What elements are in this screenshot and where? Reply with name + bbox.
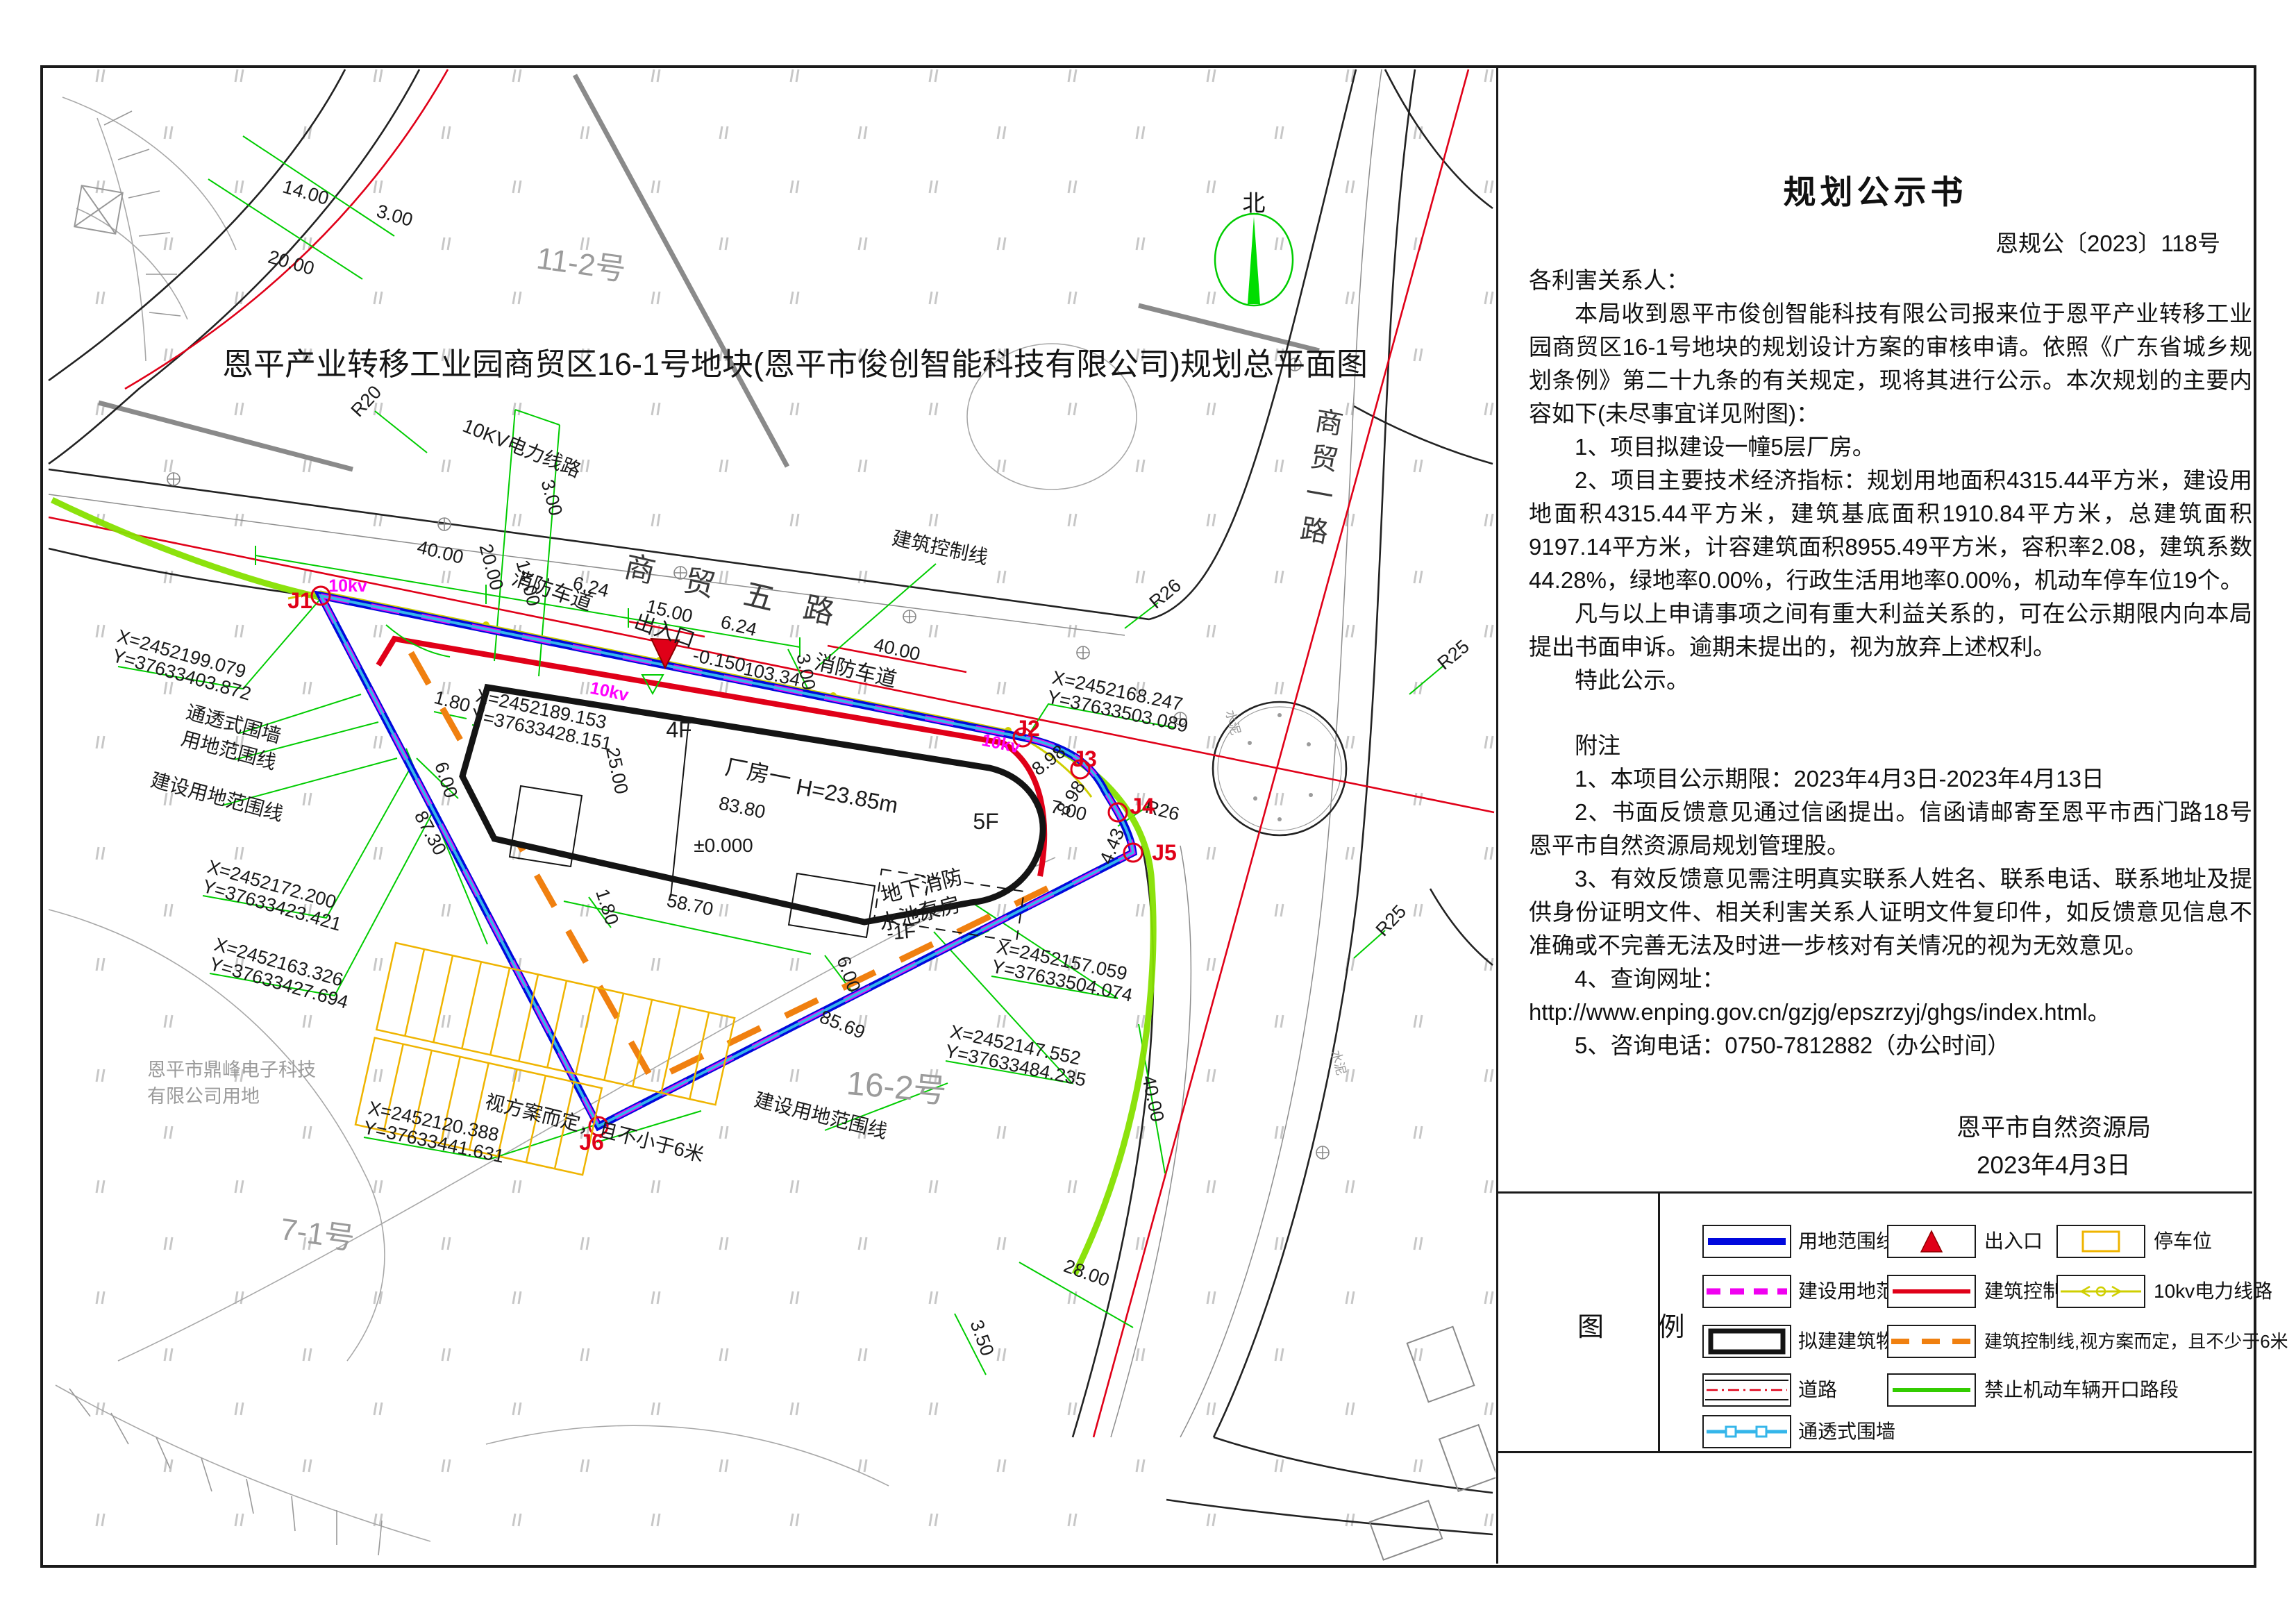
notice-title: 规划公示书 bbox=[1498, 165, 2252, 213]
power-tag: 10kv bbox=[328, 576, 367, 596]
road-name-shangmao-1: 贸 bbox=[1308, 442, 1341, 476]
legend-label: 通透式围墙 bbox=[1798, 1415, 1895, 1448]
floor-5f: 5F bbox=[973, 809, 998, 834]
point-j6: J6 bbox=[579, 1130, 604, 1155]
legend-swatch-no-opening bbox=[1887, 1373, 1976, 1407]
neighbor-owner: 恩平市鼎峰电子科技 bbox=[147, 1060, 316, 1080]
annex-item: 4、查询网址： bbox=[1529, 962, 2252, 996]
legend-label: 出入口 bbox=[1984, 1225, 2043, 1258]
site-plan-map: > bbox=[43, 68, 1495, 1561]
point-j3: J3 bbox=[1072, 746, 1097, 771]
legend-swatch-entrance bbox=[1887, 1225, 1976, 1258]
parking-space-icon bbox=[2083, 1232, 2119, 1251]
legend-swatch-control-line-conditional bbox=[1887, 1325, 1976, 1358]
legend-border-bottom bbox=[1496, 1451, 2252, 1453]
legend-label: 禁止机动车辆开口路段 bbox=[1984, 1373, 2179, 1407]
floor-4f: 4F bbox=[666, 717, 692, 742]
neighbor-owner: 有限公司用地 bbox=[147, 1086, 260, 1107]
road-name-shangmao-1: 商 bbox=[1313, 405, 1346, 440]
north-label: 北 bbox=[1243, 190, 1266, 216]
notice-paragraph: 2、项目主要技术经济指标：规划用地面积4315.44平方米，建设用地面积4315… bbox=[1529, 464, 2252, 597]
legend-label: 拟建建筑物 bbox=[1798, 1325, 1895, 1358]
legend-border-top bbox=[1496, 1191, 2252, 1194]
annex-item: 2、书面反馈意见通过信函提出。信函请邮寄至恩平市西门路18号恩平市自然资源局规划… bbox=[1529, 796, 2252, 862]
point-j5: J5 bbox=[1152, 840, 1177, 865]
notice-paragraph: 凡与以上申请事项之间有重大利益关系的，可在公示期限内向本局提出书面申诉。逾期未提… bbox=[1529, 597, 2252, 664]
legend-swatch-construction-boundary bbox=[1702, 1275, 1791, 1308]
road-icon bbox=[1704, 1375, 1790, 1405]
issue-date: 2023年4月3日 bbox=[1873, 1147, 2234, 1184]
notice-paragraph: 本局收到恩平市俊创智能科技有限公司报来位于恩平产业转移工业园商贸区16-1号地块… bbox=[1529, 297, 2252, 430]
legend-label: 用地范围线 bbox=[1798, 1225, 1895, 1258]
notice-paragraph: 特此公示。 bbox=[1529, 664, 2252, 697]
plan-sheet: > bbox=[0, 0, 2296, 1624]
point-j1: J1 bbox=[287, 588, 312, 613]
entrance-triangle-icon bbox=[1921, 1231, 1942, 1252]
legend-swatch-road bbox=[1702, 1373, 1791, 1407]
notice-body: 各利害关系人： 本局收到恩平市俊创智能科技有限公司报来位于恩平产业转移工业园商贸… bbox=[1529, 264, 2252, 1062]
notice-paragraph: 1、项目拟建设一幢5层厂房。 bbox=[1529, 430, 2252, 464]
point-j4: J4 bbox=[1130, 794, 1155, 819]
legend-swatch-proposed-building bbox=[1702, 1325, 1791, 1358]
annex-title: 附注 bbox=[1529, 729, 2252, 762]
permeable-wall-icon bbox=[1704, 1416, 1790, 1447]
notice-doc-number: 恩规公〔2023〕118号 bbox=[1526, 225, 2220, 258]
notice-salutation: 各利害关系人： bbox=[1529, 264, 2252, 297]
legend-label: 道路 bbox=[1798, 1373, 1837, 1407]
annex-item: 1、本项目公示期限：2023年4月3日-2023年4月13日 bbox=[1529, 762, 2252, 796]
legend-swatch-parking bbox=[2056, 1225, 2145, 1258]
level-zero: ±0.000 bbox=[694, 835, 753, 856]
annex-item: 5、咨询电话：0750-7812882（办公时间） bbox=[1529, 1029, 2252, 1062]
proposed-building-icon bbox=[1711, 1331, 1783, 1352]
issuer-name: 恩平市自然资源局 bbox=[1873, 1110, 2234, 1147]
legend-swatch-parcel-boundary bbox=[1702, 1225, 1791, 1258]
legend-label: 建筑控制线,视方案而定，且不少于6米 bbox=[1984, 1325, 2288, 1358]
legend-label: 停车位 bbox=[2154, 1225, 2212, 1258]
legend-swatch-power-line bbox=[2056, 1275, 2145, 1308]
legend-label: 10kv电力线路 bbox=[2154, 1275, 2272, 1308]
annex-url: http://www.enping.gov.cn/gzjg/epszrzyj/g… bbox=[1529, 996, 2252, 1029]
annex-item: 3、有效反馈意见需注明真实联系人姓名、联系电话、联系地址及提供身份证明文件、相关… bbox=[1529, 862, 2252, 962]
power-line-icon bbox=[2058, 1276, 2144, 1307]
pump-room-floor: -1F bbox=[886, 920, 917, 944]
map-title: 恩平产业转移工业园商贸区16-1号地块(恩平市俊创智能科技有限公司)规划总平面图 bbox=[222, 346, 1368, 382]
notice-signature: 恩平市自然资源局 2023年4月3日 bbox=[1873, 1110, 2234, 1184]
road-name-shangmao-1: 路 bbox=[1298, 514, 1331, 549]
road-name-shangmao-1: 一 bbox=[1303, 478, 1336, 512]
legend-swatch-permeable-wall bbox=[1702, 1415, 1791, 1448]
legend-swatch-control-line bbox=[1887, 1275, 1976, 1308]
